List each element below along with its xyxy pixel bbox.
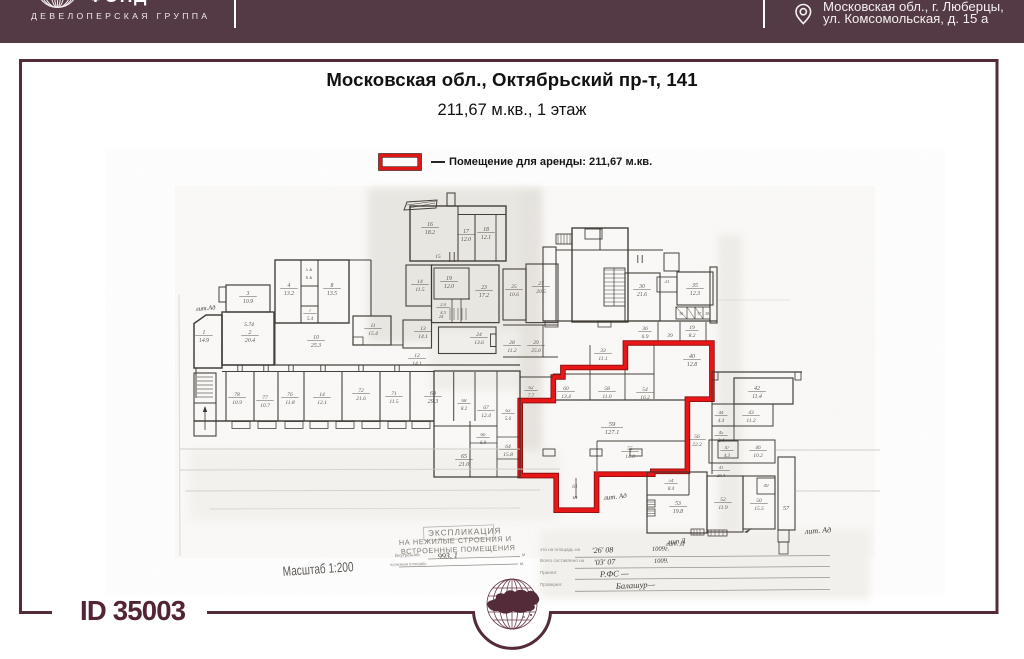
svg-text:49: 49 <box>764 484 770 489</box>
svg-text:60: 60 <box>563 386 569 392</box>
svg-text:21.0: 21.0 <box>459 462 470 468</box>
svg-text:полезная площадь: полезная площадь <box>390 561 428 567</box>
svg-text:53: 53 <box>675 501 681 507</box>
svg-text:III: III <box>572 496 578 501</box>
svg-text:1009г.: 1009г. <box>652 545 670 553</box>
svg-text:29.3: 29.3 <box>428 399 439 405</box>
svg-text:12.8: 12.8 <box>687 362 697 368</box>
svg-text:11.1: 11.1 <box>598 356 607 362</box>
svg-text:19: 19 <box>689 325 695 331</box>
svg-text:14.1: 14.1 <box>412 360 422 367</box>
svg-text:'26' 08: '26' 08 <box>592 545 614 555</box>
svg-text:13.2: 13.2 <box>284 291 294 297</box>
svg-text:13.6: 13.6 <box>474 340 484 346</box>
svg-text:7.7: 7.7 <box>528 394 535 399</box>
svg-text:57: 57 <box>783 506 790 512</box>
svg-text:12.1: 12.1 <box>317 400 327 406</box>
svg-text:50: 50 <box>756 498 762 504</box>
svg-text:54: 54 <box>642 386 648 393</box>
svg-text:24: 24 <box>439 314 444 319</box>
svg-text:78: 78 <box>234 392 240 398</box>
svg-text:14: 14 <box>417 278 423 285</box>
svg-text:14.9: 14.9 <box>199 337 209 344</box>
svg-text:19.8: 19.8 <box>673 509 683 515</box>
svg-text:14: 14 <box>319 391 325 398</box>
svg-text:12.0: 12.0 <box>444 284 454 290</box>
svg-text:6 Б: 6 Б <box>306 276 313 281</box>
svg-text:'03' 07: '03' 07 <box>594 557 617 567</box>
svg-text:56: 56 <box>694 434 700 440</box>
svg-text:16.2: 16.2 <box>640 395 650 401</box>
svg-text:10.2: 10.2 <box>753 453 763 459</box>
svg-text:67: 67 <box>483 405 489 411</box>
svg-text:59: 59 <box>609 421 616 428</box>
svg-text:39: 39 <box>666 333 673 339</box>
svg-text:10.7: 10.7 <box>260 403 270 409</box>
svg-text:24: 24 <box>476 331 482 338</box>
svg-text:61: 61 <box>572 484 578 490</box>
svg-text:68: 68 <box>462 399 468 404</box>
svg-text:31: 31 <box>665 280 670 285</box>
svg-text:Внутренняя: Внутренняя <box>395 552 420 558</box>
svg-text:5.6: 5.6 <box>505 417 512 422</box>
svg-text:12.3: 12.3 <box>690 291 700 297</box>
svg-text:12.4: 12.4 <box>481 412 491 419</box>
svg-text:3: 3 <box>246 291 250 297</box>
svg-text:52: 52 <box>720 497 726 503</box>
svg-text:4: 4 <box>288 282 291 289</box>
svg-text:18: 18 <box>483 227 489 233</box>
svg-text:4.3: 4.3 <box>724 454 731 459</box>
svg-text:20.5: 20.5 <box>536 289 546 295</box>
svg-text:лит. Ад: лит. Ад <box>804 525 832 536</box>
svg-text:36: 36 <box>679 311 683 316</box>
svg-text:11.4: 11.4 <box>752 393 762 400</box>
svg-text:12.0: 12.0 <box>461 237 471 243</box>
svg-text:Р.ФС —: Р.ФС — <box>599 568 629 579</box>
svg-text:4.4: 4.4 <box>718 419 725 424</box>
svg-text:77: 77 <box>262 395 268 401</box>
svg-text:15.8: 15.8 <box>503 452 513 458</box>
svg-text:14.1: 14.1 <box>418 333 428 340</box>
svg-text:10.9: 10.9 <box>232 400 242 406</box>
svg-text:11.0: 11.0 <box>602 394 611 400</box>
svg-text:Всего составлено на: Всего составлено на <box>540 558 585 563</box>
svg-text:19: 19 <box>446 276 452 282</box>
svg-text:Балашур—: Балашур— <box>615 579 656 591</box>
svg-text:13.5: 13.5 <box>327 291 337 297</box>
svg-text:65: 65 <box>461 454 467 460</box>
svg-text:45: 45 <box>719 431 724 436</box>
svg-text:11.9: 11.9 <box>718 505 727 511</box>
svg-text:10.6: 10.6 <box>509 292 519 298</box>
svg-text:10.9: 10.9 <box>243 299 253 305</box>
svg-text:21.6: 21.6 <box>637 292 647 298</box>
svg-text:6.0: 6.0 <box>480 441 487 446</box>
svg-text:63: 63 <box>506 409 512 414</box>
svg-text:5.4: 5.4 <box>307 317 314 322</box>
svg-text:2: 2 <box>249 330 252 336</box>
svg-text:12.1: 12.1 <box>481 235 491 241</box>
svg-text:16: 16 <box>427 222 433 228</box>
svg-text:11.8: 11.8 <box>285 400 294 406</box>
svg-text:36: 36 <box>641 326 648 332</box>
svg-text:13.4: 13.4 <box>561 393 571 400</box>
svg-text:42: 42 <box>754 385 760 392</box>
svg-text:21.6: 21.6 <box>356 396 366 402</box>
svg-text:12: 12 <box>414 353 420 359</box>
svg-text:62: 62 <box>529 386 535 391</box>
svg-text:1009.: 1009. <box>654 557 669 565</box>
svg-text:11.2: 11.2 <box>746 418 755 424</box>
svg-text:2.0: 2.0 <box>440 302 446 307</box>
svg-text:25.0: 25.0 <box>531 348 541 354</box>
svg-text:30: 30 <box>638 284 645 290</box>
svg-text:25: 25 <box>511 284 517 290</box>
svg-text:8.2: 8.2 <box>461 407 468 412</box>
svg-text:23: 23 <box>481 285 487 291</box>
svg-text:18.2: 18.2 <box>425 230 435 236</box>
svg-text:58: 58 <box>604 386 610 392</box>
svg-text:47: 47 <box>725 446 730 451</box>
svg-text:38: 38 <box>705 311 709 316</box>
svg-text:Масштаб 1:200: Масштаб 1:200 <box>282 559 354 579</box>
svg-text:54: 54 <box>669 479 675 484</box>
svg-text:72: 72 <box>358 388 364 394</box>
svg-text:35: 35 <box>691 283 698 289</box>
svg-text:11: 11 <box>370 323 375 329</box>
svg-text:43: 43 <box>748 409 754 416</box>
svg-text:40: 40 <box>689 353 695 360</box>
svg-text:993, 1: 993, 1 <box>438 551 459 561</box>
svg-text:м: м <box>522 552 525 557</box>
svg-text:76: 76 <box>287 392 293 398</box>
svg-text:29: 29 <box>533 340 539 346</box>
svg-text:Проверил:: Проверил: <box>540 582 562 587</box>
svg-text:8.4: 8.4 <box>668 487 675 492</box>
svg-text:8.2: 8.2 <box>689 333 696 339</box>
svg-text:11.5: 11.5 <box>415 287 424 293</box>
svg-text:5 Б: 5 Б <box>306 268 313 273</box>
svg-text:66: 66 <box>481 433 487 438</box>
svg-text:127.1: 127.1 <box>605 429 620 436</box>
svg-text:20.4: 20.4 <box>245 337 255 344</box>
svg-text:25.3: 25.3 <box>311 343 321 349</box>
svg-text:15: 15 <box>435 254 441 260</box>
svg-text:15.5: 15.5 <box>754 506 764 512</box>
svg-text:10: 10 <box>313 335 319 341</box>
svg-text:71: 71 <box>391 391 397 397</box>
svg-text:1: 1 <box>203 330 206 336</box>
svg-text:13: 13 <box>420 326 426 332</box>
svg-text:28: 28 <box>509 340 515 346</box>
svg-text:46: 46 <box>755 444 761 451</box>
svg-text:Принял:: Принял: <box>540 570 557 575</box>
svg-text:мип Д: мип Д <box>667 537 687 546</box>
svg-text:17.2: 17.2 <box>479 293 489 299</box>
svg-text:11.5: 11.5 <box>389 399 398 405</box>
svg-text:44: 44 <box>719 411 724 416</box>
svg-text:8: 8 <box>331 283 334 289</box>
svg-text:эта на площадь на: эта на площадь на <box>540 547 580 552</box>
svg-text:69: 69 <box>430 391 436 397</box>
svg-text:м: м <box>520 561 523 566</box>
svg-text:22.2: 22.2 <box>692 442 702 448</box>
svg-text:5.74: 5.74 <box>244 321 254 328</box>
svg-text:15.4: 15.4 <box>368 330 378 337</box>
svg-text:33: 33 <box>599 348 606 354</box>
svg-text:6.9: 6.9 <box>642 334 649 340</box>
svg-text:41: 41 <box>719 465 724 470</box>
svg-text:11.2: 11.2 <box>507 348 516 354</box>
